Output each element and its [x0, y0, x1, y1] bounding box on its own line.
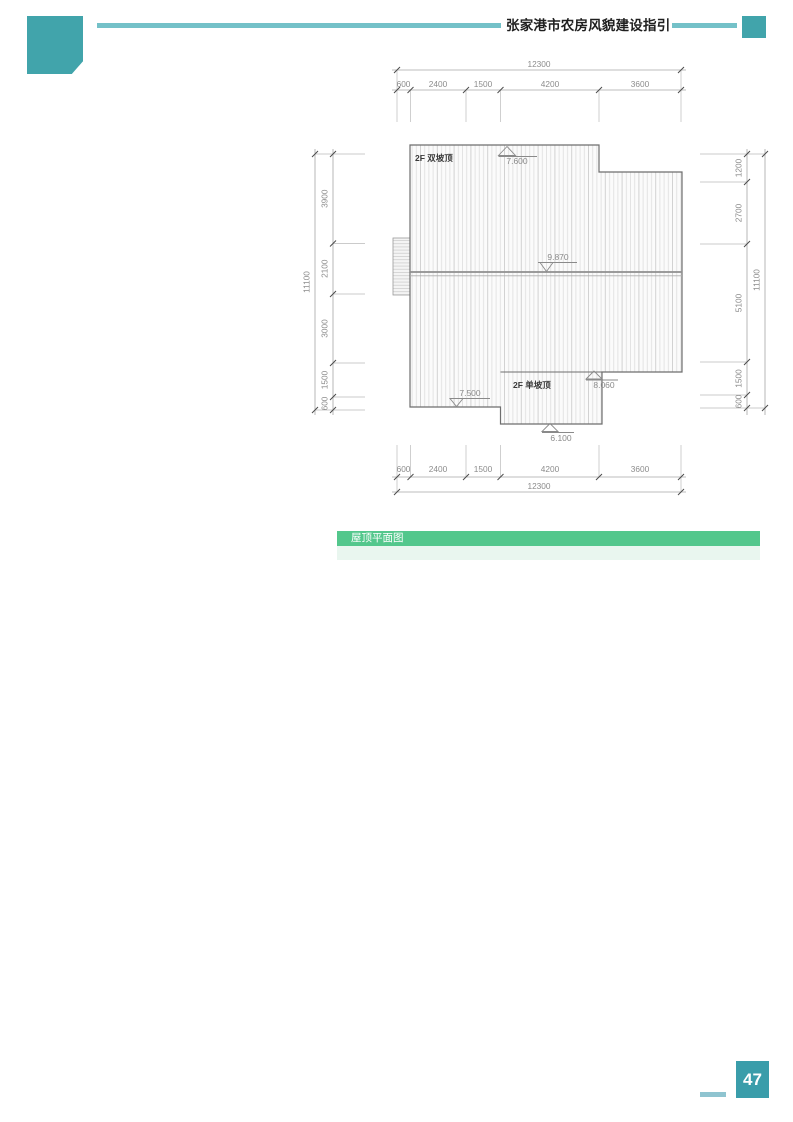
- dim-label: 1500: [474, 79, 493, 89]
- dim-label: 4200: [541, 464, 560, 474]
- dim-label: 3600: [631, 79, 650, 89]
- dim-label: 3000: [320, 319, 330, 338]
- dim-total-bottom: 12300: [527, 481, 550, 491]
- building-roof: 2F 双坡顶 2F 单坡顶: [393, 145, 682, 424]
- dim-label: 5100: [734, 293, 744, 312]
- document-page: 张家港市农房风貌建设指引 2F 双坡顶 2F 单坡顶: [0, 0, 793, 1122]
- elevation-value: 8.060: [593, 380, 615, 390]
- dim-label: 4200: [541, 79, 560, 89]
- dim-label: 2100: [320, 259, 330, 278]
- dim-label: 1200: [734, 158, 744, 177]
- elevation-value: 9.870: [547, 252, 569, 262]
- dim-label: 2400: [429, 464, 448, 474]
- dim-label: 3900: [320, 189, 330, 208]
- dim-label: 2700: [734, 203, 744, 222]
- page-number-badge: 47: [736, 1061, 769, 1098]
- footer-accent-bar: [700, 1092, 726, 1097]
- dim-label: 3600: [631, 464, 650, 474]
- roof-label-double-slope: 2F 双坡顶: [415, 153, 453, 163]
- roof-plan-drawing: 2F 双坡顶 2F 单坡顶 7.600 9.870 7.500 8.060 6.…: [0, 0, 793, 520]
- dim-label: 600: [397, 464, 411, 474]
- dim-label: 600: [397, 79, 411, 89]
- dim-label: 2400: [429, 79, 448, 89]
- dim-label: 1500: [474, 464, 493, 474]
- elevation-value: 7.600: [506, 156, 528, 166]
- dim-label: 1500: [320, 370, 330, 389]
- dim-label: 600: [320, 396, 330, 410]
- dim-label: 1500: [734, 369, 744, 388]
- chimney-box: [393, 238, 410, 295]
- dim-total-left: 11100: [302, 271, 312, 293]
- elevation-marker-icon: [542, 424, 574, 433]
- figure-caption-underbar: [337, 546, 760, 560]
- figure-caption-label: 屋顶平面图: [351, 532, 404, 544]
- dim-total-top: 12300: [527, 59, 550, 69]
- dim-total-right: 11100: [752, 269, 762, 291]
- elevation-value: 6.100: [550, 433, 572, 443]
- page-number: 47: [743, 1070, 762, 1090]
- dim-label: 600: [734, 394, 744, 408]
- figure-caption-bar: 屋顶平面图: [337, 531, 760, 546]
- roof-label-single-slope: 2F 单坡顶: [513, 380, 551, 390]
- elevation-value: 7.500: [459, 388, 481, 398]
